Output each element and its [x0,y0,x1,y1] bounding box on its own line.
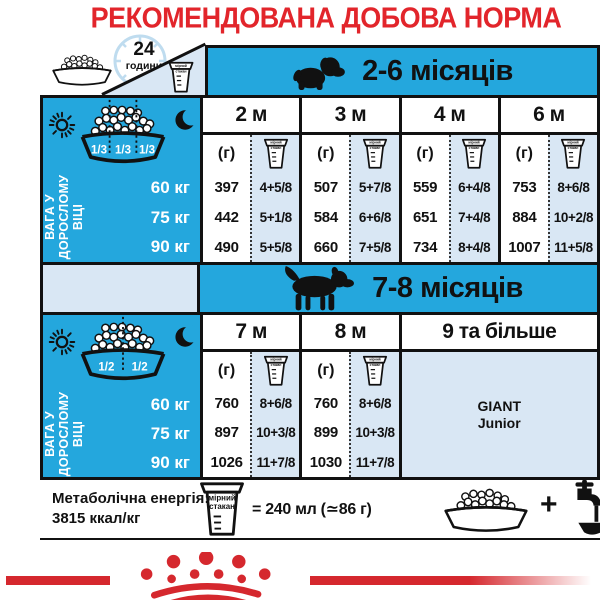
grams-value: 442 [203,202,250,232]
weight-row-label: 75 кг [120,421,190,447]
grams-value: 559 [402,172,449,202]
column-7m: 7 м (г) 760 897 1026 8+6/8 10+3/8 11+7/8 [203,315,299,477]
adult-weight-label: ВАГА У ДОРОСЛОМУ ВІЦІ [43,374,101,494]
month-columns-1: 2 м (г) 397 442 490 4+5/8 5+1/8 5+5/8 [203,98,597,262]
column-6m: 6 м (г) 753 884 1007 8+6/8 10+2/8 11+5/8 [498,98,597,262]
column-3m: 3 м (г) 507 584 660 5+7/8 6+6/8 7+5/8 [299,98,398,262]
grams-value: 1007 [501,232,548,262]
weights-panel-1: 1/3 1/3 1/3 ВАГА У ДОРОСЛОМУ ВІЦІ 60 кг … [43,98,203,262]
weight-row-label: 60 кг [120,392,190,418]
plus-sign: + [540,488,558,522]
cups-value: 10+2/8 [550,202,597,232]
weights-panel-2: 1/2 1/2 ВАГА У ДОРОСЛОМУ ВІЦІ 60 кг 75 к… [43,315,203,477]
grams-value: 397 [203,172,250,202]
puppy-icon [292,54,348,90]
cups-value: 11+7/8 [252,448,299,477]
hours-value: 24 [122,39,166,61]
grams-unit: (г) [203,352,250,389]
cups-value: 10+3/8 [351,418,398,447]
month-header: 3 м [302,98,398,135]
month-header: 8 м [302,315,398,352]
measuring-cup-icon [263,355,289,386]
portion-label: 1/2 [98,361,114,373]
cups-value: 8+6/8 [550,172,597,202]
cups-subcolumn: 8+6/8 10+3/8 11+7/8 [250,352,299,477]
section2-header: 7-8 місяців [200,262,600,315]
portion-label: 1/2 [132,361,148,373]
cups-value: 6+4/8 [451,172,498,202]
grams-unit: (г) [302,352,349,389]
measuring-cup-icon [263,138,289,169]
cups-subcolumn: 5+7/8 6+6/8 7+5/8 [349,135,398,262]
cup-label-2: стакан [209,502,235,511]
measuring-cup-icon [560,138,586,169]
grams-value: 753 [501,172,548,202]
grams-value: 760 [302,389,349,418]
crown-logo [112,552,308,600]
cups-value: 5+5/8 [252,232,299,262]
grams-subcolumn: (г) 760 899 1030 [302,352,349,477]
month-header: 4 м [402,98,498,135]
grams-unit: (г) [302,135,349,172]
cup-equivalence: = 240 мл (≃86 г) [252,499,372,519]
grams-value: 760 [203,389,250,418]
grams-subcolumn: (г) 397 442 490 [203,135,250,262]
cups-value: 8+6/8 [351,389,398,418]
column-4m: 4 м (г) 559 651 734 6+4/8 7+4/8 8+4/8 [399,98,498,262]
empty-corner-box [40,262,200,315]
faucet-water-icon [564,480,600,537]
grams-value: 1026 [203,448,250,477]
table-2-6-months: 1/3 1/3 1/3 ВАГА У ДОРОСЛОМУ ВІЦІ 60 кг … [40,95,600,265]
measuring-cup-icon [167,61,195,93]
grams-value: 507 [302,172,349,202]
cups-subcolumn: 8+6/8 10+2/8 11+5/8 [548,135,597,262]
column-8m: 8 м (г) 760 899 1030 8+6/8 10+3/8 11+7/8 [299,315,398,477]
energy-label: Метаболічна енергія: [52,489,209,509]
grams-value: 1030 [302,448,349,477]
cups-value: 5+1/8 [252,202,299,232]
measuring-cup-icon [362,355,388,386]
cups-value: 5+7/8 [351,172,398,202]
portion-label: 1/3 [139,144,155,156]
cups-value: 8+6/8 [252,389,299,418]
cups-value: 11+7/8 [351,448,398,477]
cups-value: 7+4/8 [451,202,498,232]
cups-subcolumn: 4+5/8 5+1/8 5+5/8 [250,135,299,262]
month-header: 9 та більше [402,315,597,352]
cups-subcolumn: 8+6/8 10+3/8 11+7/8 [349,352,398,477]
weight-row-label: 90 кг [120,450,190,476]
adult-dog-icon [274,266,360,312]
page-title: РЕКОМЕНДОВАНА ДОБОВА НОРМА [0,2,600,35]
month-header: 6 м [501,98,597,135]
grams-value: 897 [203,418,250,447]
grams-value: 584 [302,202,349,232]
cups-value: 11+5/8 [550,232,597,262]
grams-value: 490 [203,232,250,262]
grams-value: 734 [402,232,449,262]
grams-subcolumn: (г) 760 897 1026 [203,352,250,477]
month-columns-2: 7 м (г) 760 897 1026 8+6/8 10+3/8 11+7/8 [203,315,597,477]
grams-subcolumn: (г) 507 584 660 [302,135,349,262]
grams-subcolumn: (г) 753 884 1007 [501,135,548,262]
section2-band: 7-8 місяців [40,262,600,315]
section2-title: 7-8 місяців [372,272,523,305]
grams-value: 899 [302,418,349,447]
energy-info: Метаболічна енергія: 3815 ккал/кг [52,489,209,529]
red-line-right [310,576,600,585]
cups-subcolumn: 6+4/8 7+4/8 8+4/8 [449,135,498,262]
table-7-8-months: 1/2 1/2 ВАГА У ДОРОСЛОМУ ВІЦІ 60 кг 75 к… [40,312,600,480]
portion-label: 1/3 [115,144,131,156]
grams-unit: (г) [501,135,548,172]
cups-value: 4+5/8 [252,172,299,202]
header-band: 24 години 2-6 місяців [40,45,600,95]
adult-weight-label: ВАГА У ДОРОСЛОМУ ВІЦІ [43,157,101,277]
portion-label: 1/3 [91,144,107,156]
feeding-guide-label: РЕКОМЕНДОВАНА ДОБОВА НОРМА 24 години 2-6… [0,0,600,600]
footer-info: Метаболічна енергія: 3815 ккал/кг мірний… [40,480,600,540]
cups-value: 7+5/8 [351,232,398,262]
grams-unit: (г) [402,135,449,172]
cups-value: 10+3/8 [252,418,299,447]
red-line-left [6,576,110,585]
product-name: GIANT Junior [402,352,597,477]
weight-row-label: 60 кг [120,175,190,201]
weight-row-label: 75 кг [120,205,190,231]
food-bowl-icon [438,484,534,536]
cups-value: 6+6/8 [351,202,398,232]
section1-header: 2-6 місяців [205,45,600,95]
grams-value: 651 [402,202,449,232]
grams-value: 660 [302,232,349,262]
grams-value: 884 [501,202,548,232]
grams-unit: (г) [203,135,250,172]
month-header: 2 м [203,98,299,135]
cups-value: 8+4/8 [451,232,498,262]
food-bowl-icon [50,51,114,89]
measuring-cup-large-icon: мірний стакан [198,481,246,537]
weight-row-label: 90 кг [120,234,190,260]
column-2m: 2 м (г) 397 442 490 4+5/8 5+1/8 5+5/8 [203,98,299,262]
month-header: 7 м [203,315,299,352]
column-9-plus: 9 та більше GIANT Junior [399,315,597,477]
grams-subcolumn: (г) 559 651 734 [402,135,449,262]
section1-title: 2-6 місяців [362,55,513,88]
measuring-cup-icon [461,138,487,169]
energy-value: 3815 ккал/кг [52,509,209,529]
measuring-cup-icon [362,138,388,169]
